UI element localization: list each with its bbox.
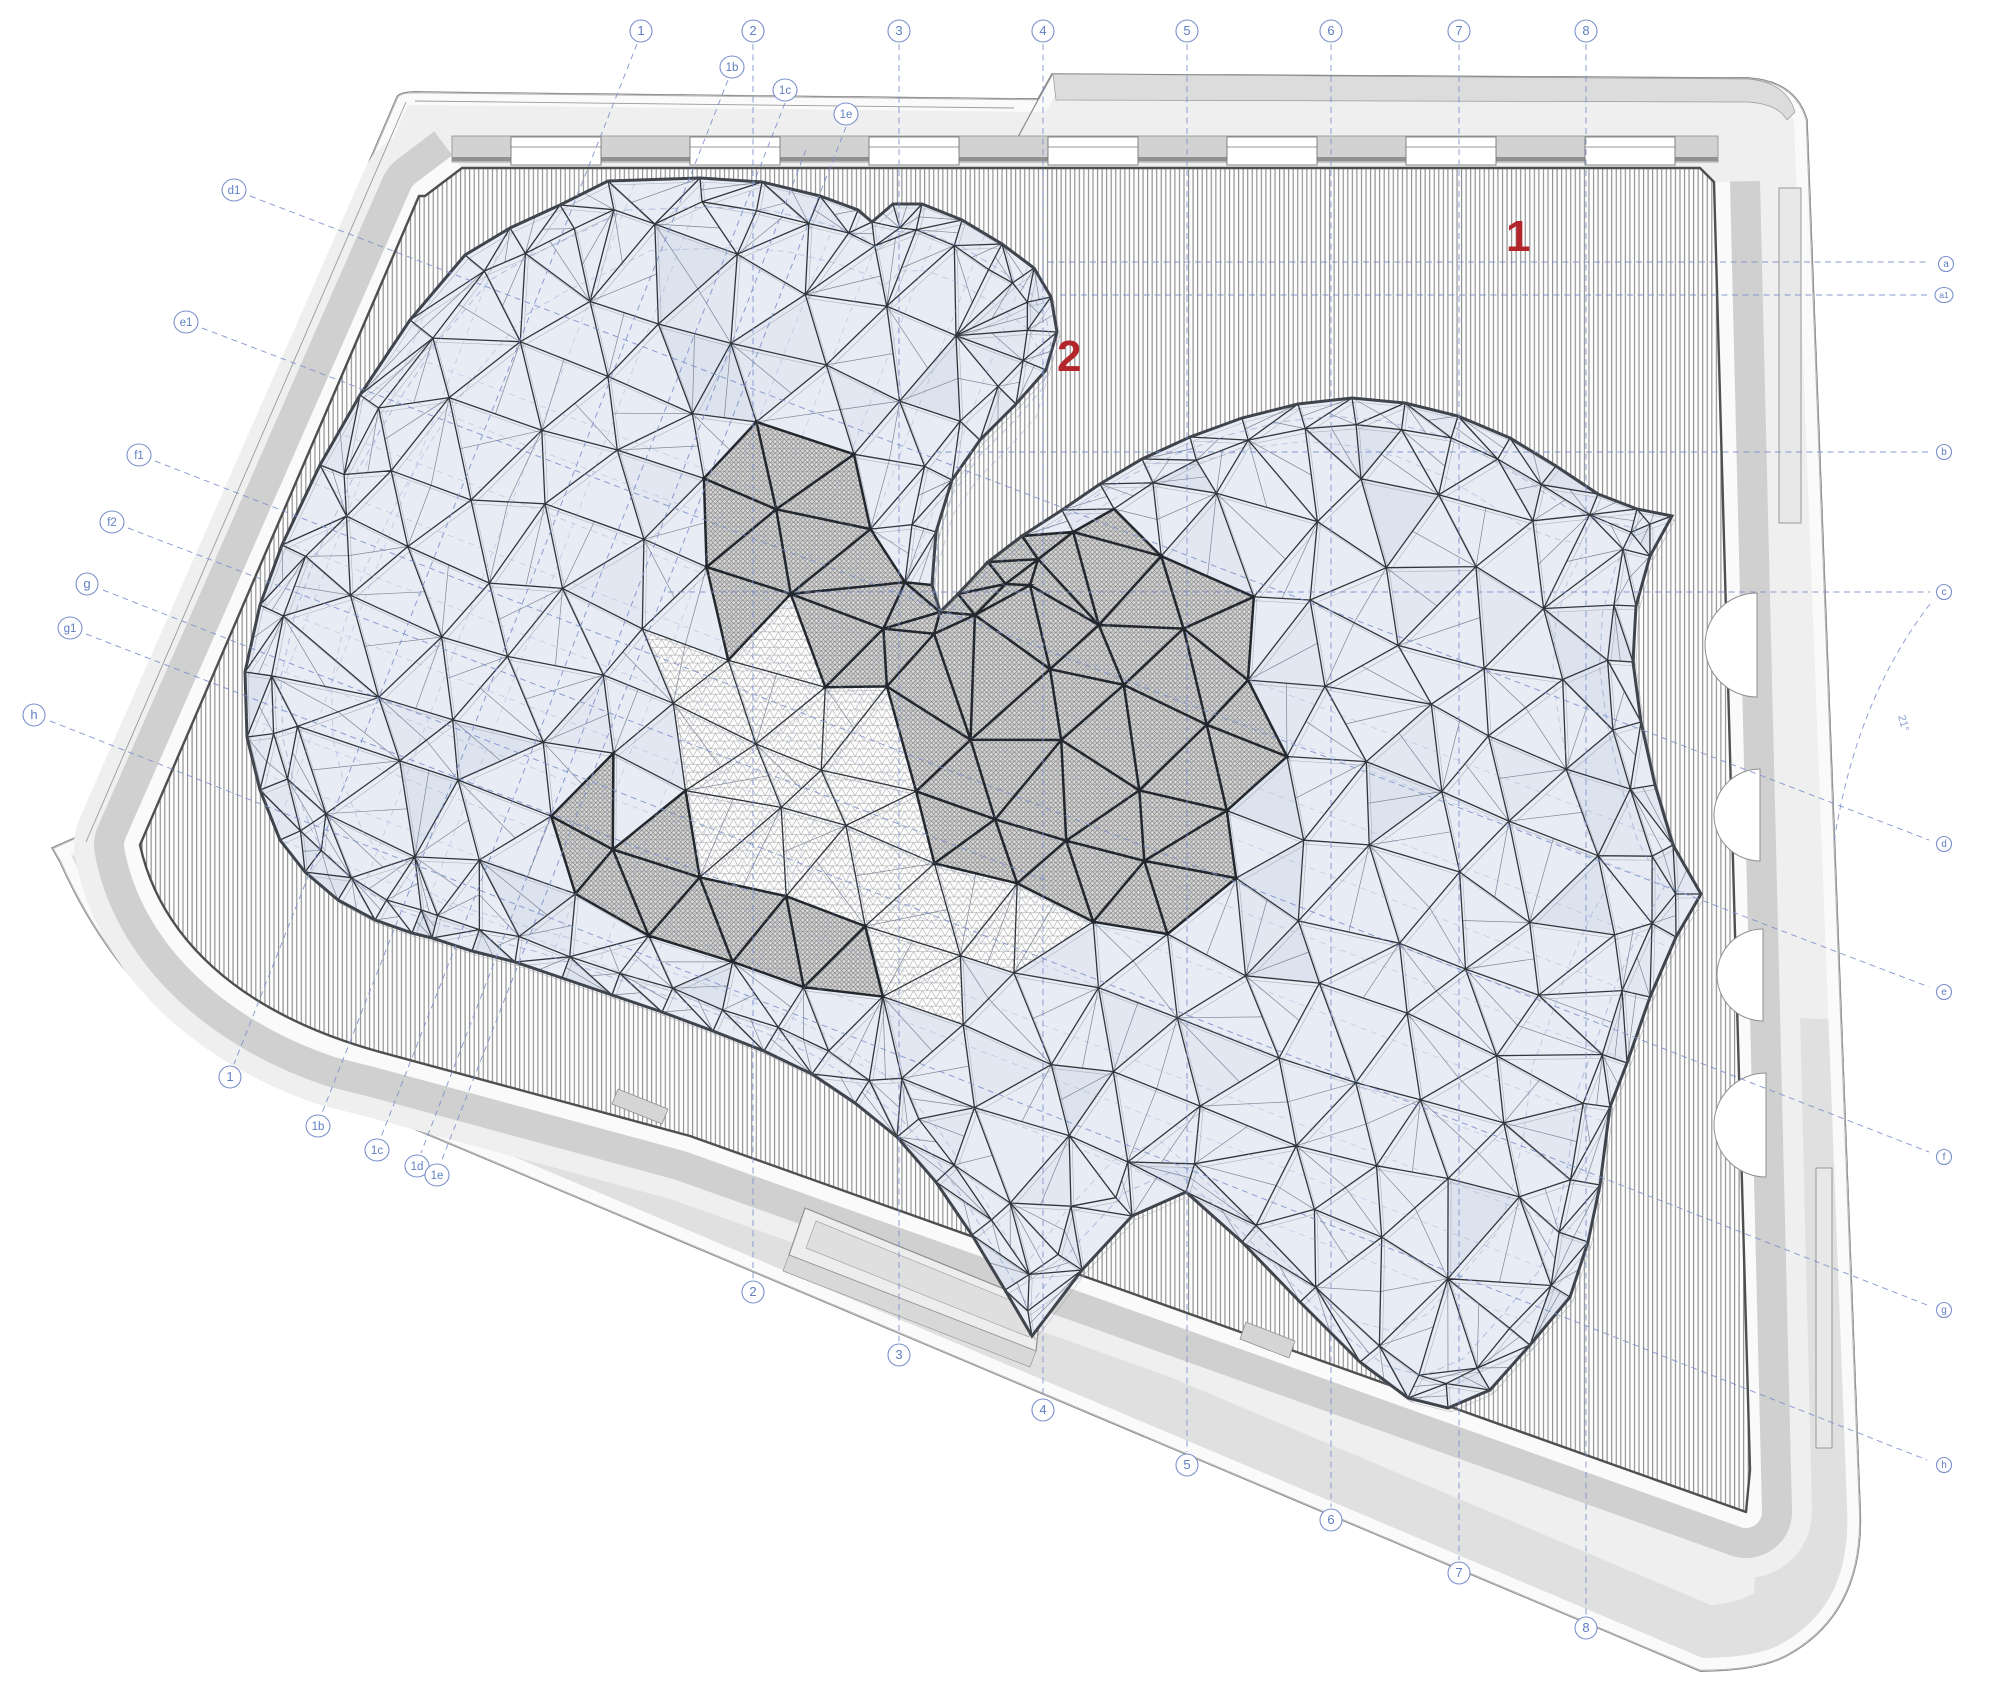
- svg-text:3: 3: [895, 23, 902, 38]
- svg-text:g: g: [83, 576, 90, 591]
- svg-text:1: 1: [226, 1069, 233, 1084]
- svg-text:5: 5: [1183, 23, 1190, 38]
- svg-text:4: 4: [1039, 1402, 1046, 1417]
- svg-text:f1: f1: [134, 450, 144, 462]
- svg-text:3: 3: [895, 1347, 902, 1362]
- svg-text:1d: 1d: [411, 1161, 424, 1173]
- svg-text:6: 6: [1327, 1512, 1334, 1527]
- svg-text:4: 4: [1039, 23, 1046, 38]
- svg-text:1b: 1b: [726, 62, 739, 74]
- svg-text:1c: 1c: [779, 85, 791, 97]
- svg-text:g: g: [1941, 1305, 1947, 1316]
- svg-text:2: 2: [749, 1284, 756, 1299]
- svg-text:1: 1: [637, 23, 644, 38]
- svg-text:2: 2: [749, 23, 756, 38]
- svg-text:1e: 1e: [431, 1170, 444, 1182]
- svg-text:8: 8: [1582, 1620, 1589, 1635]
- svg-text:8: 8: [1582, 23, 1589, 38]
- svg-text:h: h: [1941, 1460, 1947, 1471]
- svg-text:6: 6: [1327, 23, 1334, 38]
- svg-text:b: b: [1941, 447, 1947, 458]
- svg-text:f: f: [1943, 1152, 1946, 1163]
- svg-text:c: c: [1942, 587, 1947, 598]
- svg-text:h: h: [30, 707, 37, 722]
- svg-text:1b: 1b: [312, 1121, 325, 1133]
- svg-text:d: d: [1941, 839, 1947, 850]
- svg-text:5: 5: [1183, 1457, 1190, 1472]
- svg-text:e: e: [1941, 987, 1947, 998]
- svg-text:e1: e1: [180, 317, 193, 329]
- svg-text:1: 1: [1506, 212, 1530, 261]
- svg-text:a: a: [1943, 259, 1949, 270]
- svg-text:a1: a1: [1939, 290, 1949, 300]
- svg-text:g1: g1: [64, 623, 77, 635]
- svg-text:7: 7: [1455, 1565, 1462, 1580]
- svg-text:1e: 1e: [840, 109, 853, 121]
- svg-text:1c: 1c: [371, 1145, 383, 1157]
- svg-text:f2: f2: [107, 517, 117, 529]
- svg-text:d1: d1: [228, 185, 241, 197]
- svg-text:2: 2: [1057, 332, 1081, 381]
- svg-text:7: 7: [1455, 23, 1462, 38]
